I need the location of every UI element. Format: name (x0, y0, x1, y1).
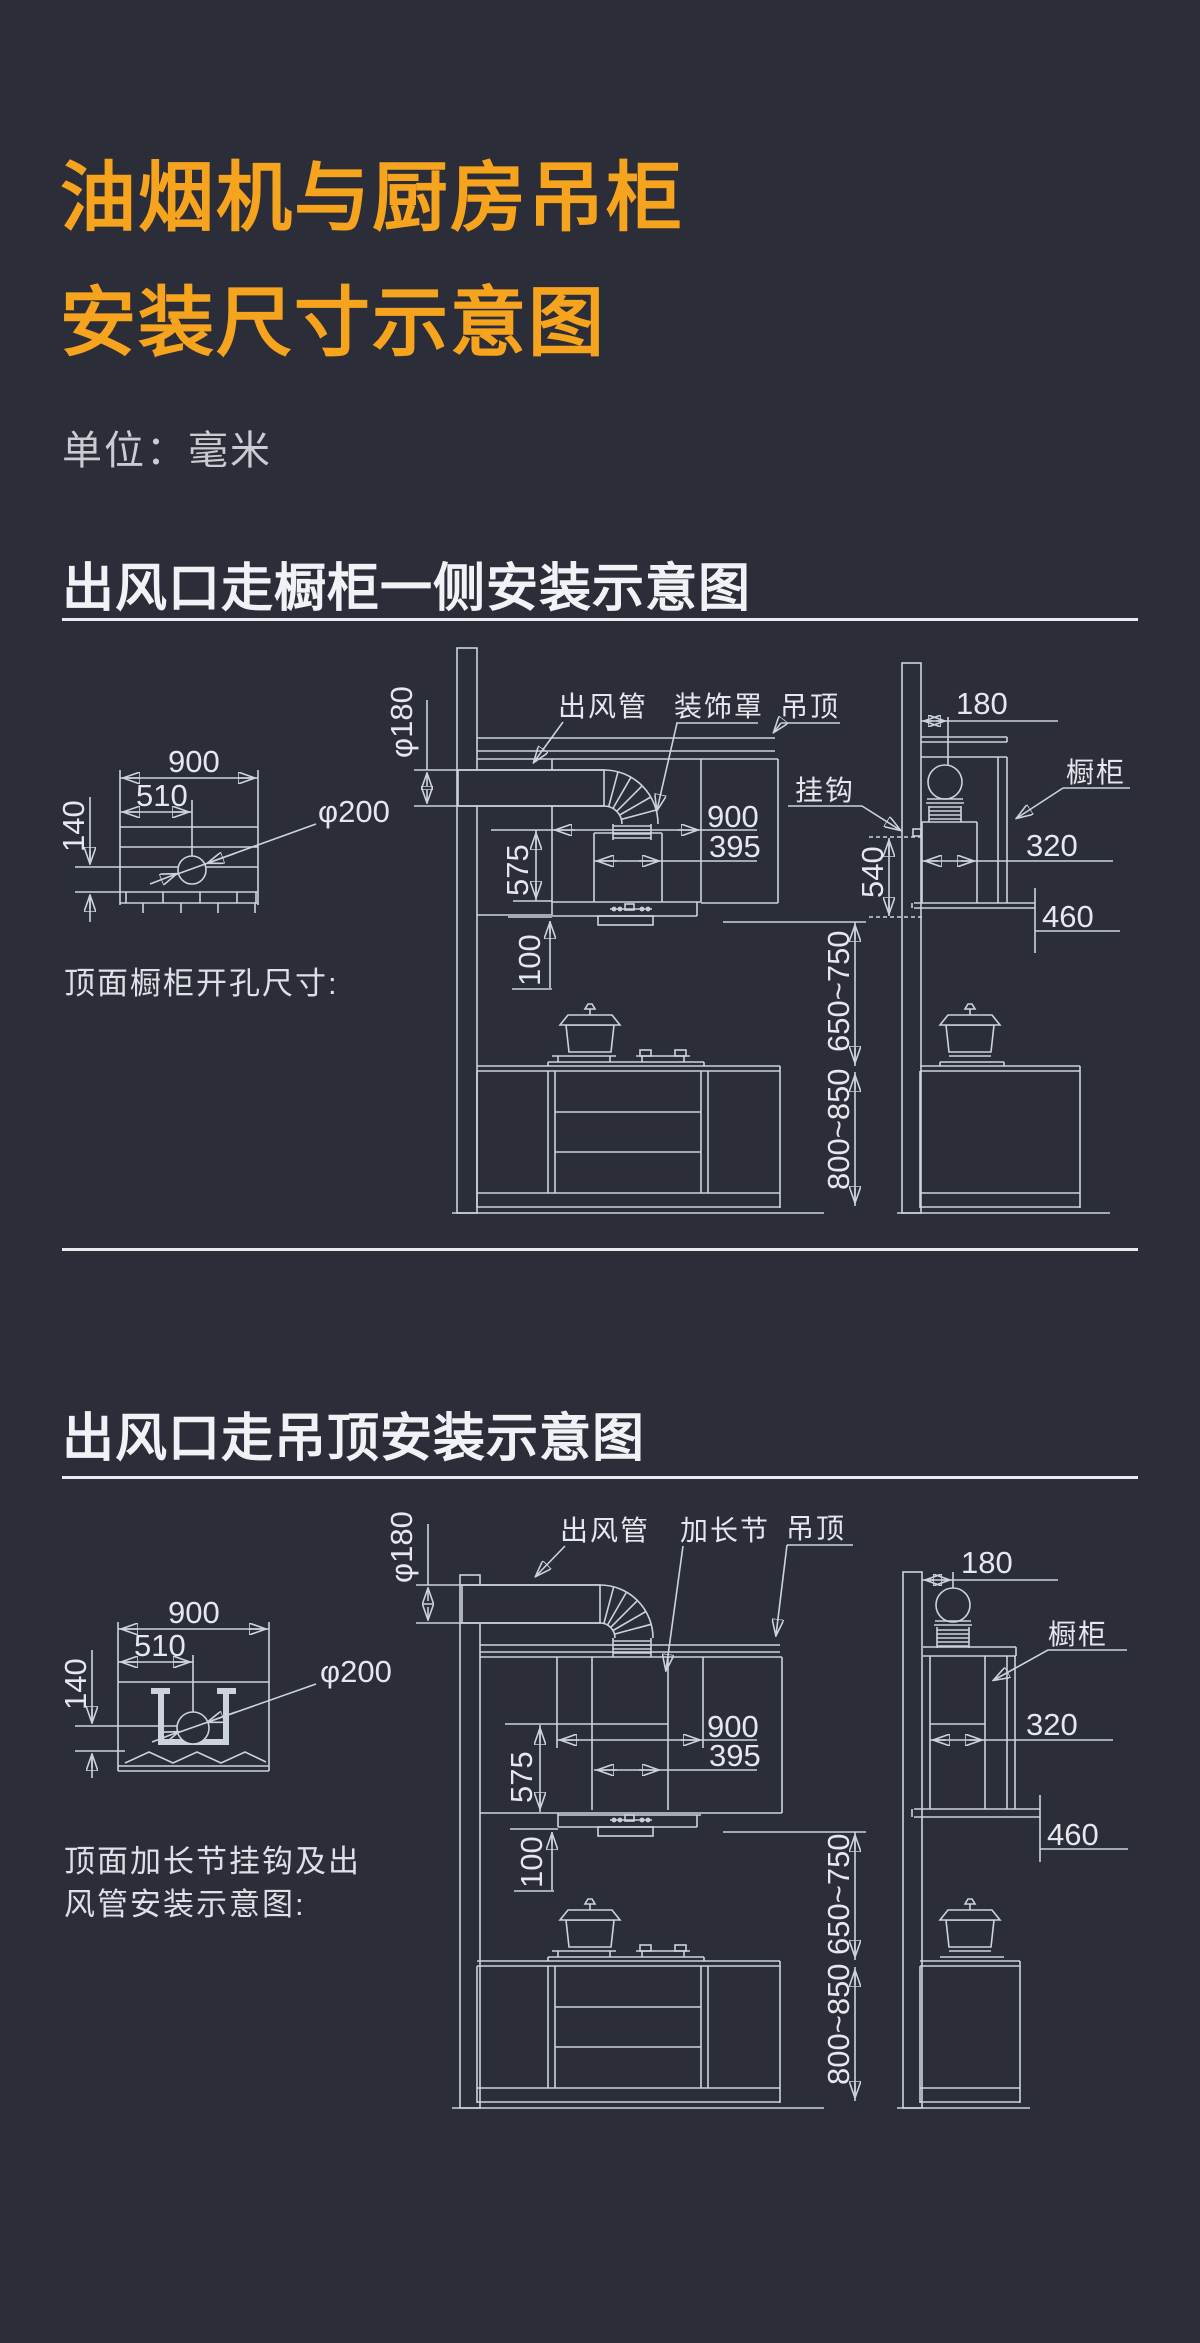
dim2-counter-height: 800~850 (821, 1963, 856, 2085)
section2-diagram: 900 510 140 φ200 (58, 1511, 1128, 2108)
section1-sideview-diagram: 180 (855, 663, 1120, 1213)
section2-dimensions: 900 395 575 100 (504, 1709, 866, 2101)
dim-topview-depth: 140 (56, 800, 91, 852)
dim-hood-height: 575 (500, 844, 535, 896)
dim2-body-width: 395 (709, 1738, 761, 1773)
dim2-wall-offset: 180 (961, 1545, 1013, 1580)
installation-diagram-page: 油烟机与厨房吊柜 安装尺寸示意图 单位：毫米 出风口走橱柜一侧安装示意图 顶面橱… (0, 0, 1200, 2343)
dim2-topview-depth: 140 (58, 1658, 93, 1710)
dim-topview-hole: φ200 (318, 794, 390, 829)
label-ceiling: 吊顶 (780, 691, 840, 722)
dim-topview-width: 900 (168, 744, 220, 779)
dim-gap: 100 (512, 934, 547, 986)
dim2-topview-width: 900 (168, 1595, 220, 1630)
section1-duct-dia-annotation: φ180 (384, 686, 458, 806)
section2-main-elevation (460, 1575, 782, 2108)
dim-wall-offset: 180 (956, 686, 1008, 721)
dim2-side-depth: 320 (1026, 1707, 1078, 1742)
dim2-duct-dia: φ180 (384, 1511, 419, 1583)
dim-duct-dia: φ180 (384, 686, 419, 758)
label-hook: 挂钩 (795, 775, 855, 806)
dim-hook-height: 540 (855, 846, 890, 898)
label-cabinet: 橱柜 (1066, 757, 1126, 788)
section2-base-cabinet (452, 1899, 824, 2108)
label2-ceiling: 吊顶 (786, 1513, 846, 1544)
label2-cabinet: 橱柜 (1048, 1619, 1108, 1650)
section1-base-cabinet (452, 1004, 824, 1213)
dim2-hood-to-counter: 650~750 (821, 1833, 856, 1955)
dim-topview-offset: 510 (136, 778, 188, 813)
dim2-gap: 100 (514, 1836, 549, 1888)
cad-drawing-layer: 900 510 140 φ200 (0, 0, 1200, 2343)
label-duct: 出风管 (558, 691, 648, 722)
section1-main-elevation (457, 648, 778, 1213)
dim-body-width: 395 (709, 829, 761, 864)
dim-side-bottom: 460 (1042, 899, 1094, 934)
label2-duct: 出风管 (560, 1515, 650, 1546)
dim2-side-bottom: 460 (1047, 1817, 1099, 1852)
label-cover: 装饰罩 (674, 691, 764, 722)
section2-topview-diagram: 900 510 140 φ200 (58, 1595, 392, 1778)
section1-topview-diagram: 900 510 140 φ200 (56, 744, 390, 922)
dim2-topview-hole: φ200 (320, 1654, 392, 1689)
dim2-topview-offset: 510 (134, 1628, 186, 1663)
dim-side-depth: 320 (1026, 828, 1078, 863)
section1-callouts: 出风管 装饰罩 吊顶 挂钩 橱柜 (534, 691, 1130, 830)
section2-duct-dia-annotation: φ180 (384, 1511, 462, 1623)
dim-counter-height: 800~850 (821, 1068, 856, 1190)
label2-extension: 加长节 (680, 1515, 770, 1546)
dim-hood-to-counter: 650~750 (821, 930, 856, 1052)
section1-diagram: 900 510 140 φ200 (56, 648, 1130, 1213)
dim2-hood-height: 575 (504, 1751, 539, 1803)
